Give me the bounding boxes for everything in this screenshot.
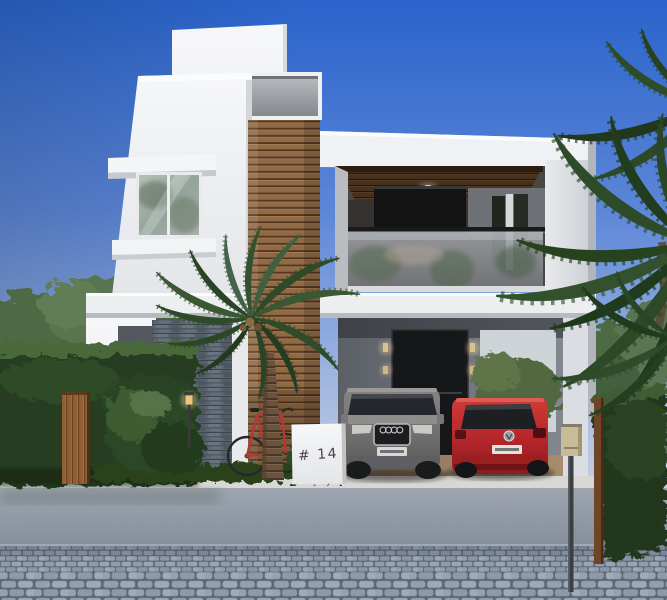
scene-canvas: # 14 [0,0,667,600]
wooden-gate [62,392,90,484]
suv-car [336,388,448,482]
tower-window [136,172,202,238]
clerestory-window [248,72,322,120]
side-mirror [341,414,348,424]
side-mirror [437,414,444,424]
hatchback-car [446,398,554,480]
balcony [335,166,545,292]
headlight [352,425,372,434]
window-ledge [112,238,216,260]
glass-railing [335,227,545,292]
suv-grille [374,424,410,445]
pavement [0,476,667,600]
house-number-pillar: # 14 [291,424,346,485]
headlight [412,425,432,434]
balcony-sliding-door [374,186,466,233]
rendered-photo: # 14 [0,0,667,600]
taillight [455,430,466,439]
house-number-text: # 14 [298,446,339,465]
street [0,544,667,600]
taillight [533,428,546,438]
